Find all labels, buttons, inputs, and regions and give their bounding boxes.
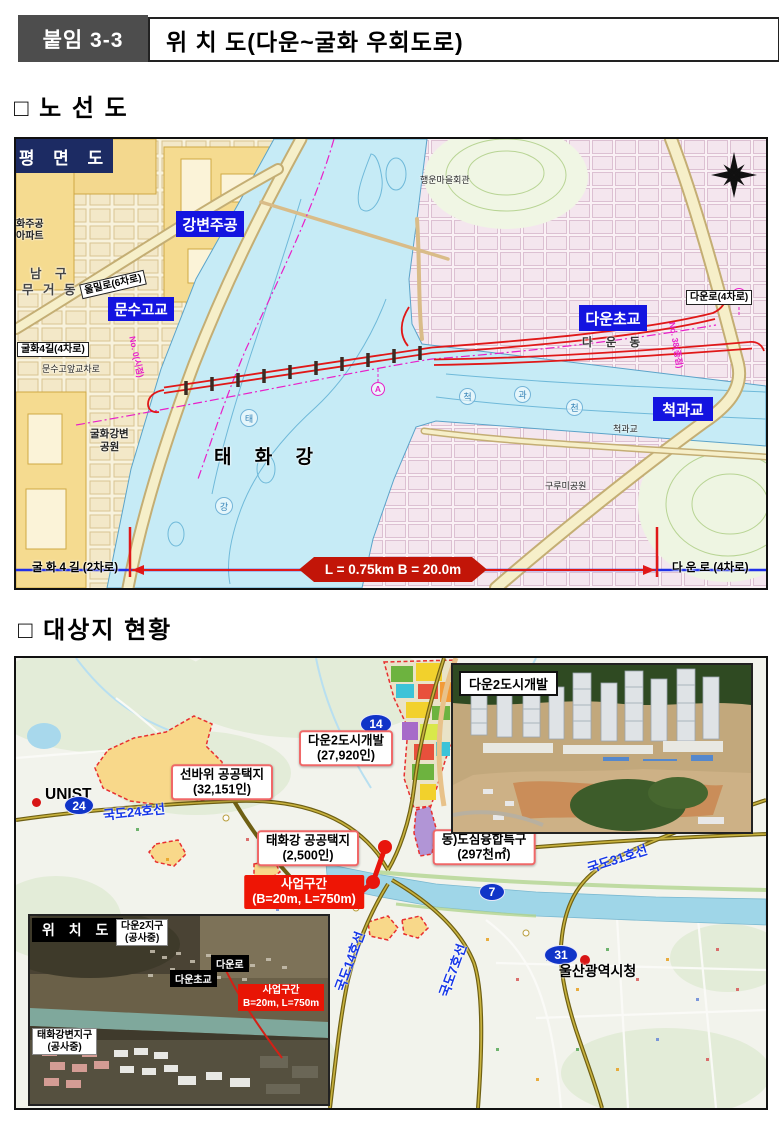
- river-name-char-2: 강: [215, 497, 233, 515]
- road-label-gulhwa4: 굴화4길(4차로): [17, 342, 89, 357]
- dimension-left-road: 굴 화 4 길 (2차로): [32, 559, 118, 575]
- photo-inset-title: 다운2도시개발: [459, 671, 558, 696]
- river-name-char-1: 태: [240, 409, 258, 427]
- zone-seonbawi: 선바위 공공택지 (32,151인): [171, 764, 273, 800]
- inset-project-name: 사업구간: [243, 985, 319, 998]
- location-inset-title: 위 치 도: [32, 918, 123, 942]
- project-section-spec: (B=20m, L=750m): [252, 892, 356, 907]
- project-section-callout: 사업구간 (B=20m, L=750m): [244, 875, 364, 909]
- inset-daun2-district-status: (공사중): [121, 933, 163, 945]
- dimension-right-road: 다 운 로 (4차로): [672, 559, 749, 575]
- zone-daun2-name: 다운2도시개발: [308, 733, 384, 748]
- document-page: 붙임 3-3 위 치 도(다운~굴화 우회도로) □ 노 선 도: [0, 0, 779, 1123]
- site-status-figure: UNIST 24 14 7 31 국도24호선 국도31호선 국도14호선 국도…: [14, 656, 768, 1110]
- section-route-map-heading: □ 노 선 도: [14, 88, 129, 123]
- route-map-background: A A: [16, 139, 766, 588]
- place-daun-dong: 다 운 동: [582, 334, 645, 350]
- daun2-photo-inset: 다운2도시개발: [451, 663, 753, 834]
- plan-view-label: 평 면 도: [16, 139, 113, 173]
- project-section-name: 사업구간: [252, 877, 356, 892]
- stream-name-char-1: 척: [459, 388, 476, 405]
- inset-daun2-district-name: 다운2지구: [121, 921, 163, 933]
- place-taehwa-river: 태 화 강: [214, 442, 322, 469]
- inset-taehwa-district-name: 태화강변지구: [37, 1030, 92, 1042]
- label-munsu-high-school: 문수고교: [108, 297, 174, 321]
- place-mugeo-dong: 무 거 동: [22, 279, 78, 298]
- city-hall-label: 울산광역시청: [559, 961, 636, 981]
- compass-icon: [710, 151, 758, 199]
- zone-seonbawi-value: (32,151인): [180, 782, 264, 797]
- zone-daun2-value: (27,920인): [308, 748, 384, 763]
- zone-dosim: 동)도심융합특구 (297천㎡): [433, 829, 536, 865]
- stream-name-char-2: 과: [514, 386, 531, 403]
- route-marker-7: 7: [479, 883, 505, 901]
- label-gangbyeon-jugong: 강변주공: [176, 211, 244, 237]
- label-cheokgwa-bridge: 척과교: [653, 397, 713, 421]
- route-marker-24: 24: [64, 796, 94, 815]
- route-map-figure: A A: [14, 137, 768, 590]
- section-site-status-heading: □ 대상지 현황: [18, 610, 172, 645]
- place-apartment-line2: 아파트: [16, 227, 44, 242]
- zone-dosim-name: 동)도심융합특구: [442, 832, 527, 847]
- inset-daun2-district: 다운2지구 (공사중): [116, 919, 168, 946]
- place-gulhwa-park-line2: 공원: [100, 439, 119, 454]
- stream-name-char-3: 천: [566, 399, 583, 416]
- inset-project-spec: B=20m, L=750m: [243, 998, 319, 1011]
- page-title: 위 치 도(다운~굴화 우회도로): [148, 17, 779, 62]
- zone-taehwagang-value: (2,500인): [266, 848, 350, 863]
- place-gurumi-park: 구루미공원: [545, 479, 586, 492]
- zone-dosim-value: (297천㎡): [442, 847, 527, 862]
- road-label-daunro: 다운로(4차로): [686, 290, 752, 305]
- inset-taehwa-district: 태화강변지구 (공사중): [32, 1028, 97, 1055]
- inset-daun-elementary-chip: 다운초교: [170, 970, 217, 987]
- dimension-badge-text: L = 0.75km B = 20.0m: [325, 562, 461, 577]
- location-photo-inset: 위 치 도 다운2지구 (공사중) 다운로 다운초교 사업구간 B=20m, L…: [28, 914, 330, 1106]
- inset-taehwa-district-status: (공사중): [37, 1042, 92, 1054]
- label-daun-elementary: 다운초교: [579, 305, 647, 331]
- dimension-badge: L = 0.75km B = 20.0m: [299, 557, 487, 582]
- zone-taehwagang-name: 태화강 공공택지: [266, 833, 350, 848]
- zone-seonbawi-name: 선바위 공공택지: [180, 767, 264, 782]
- inset-project-box: 사업구간 B=20m, L=750m: [238, 984, 324, 1011]
- place-munsu-crossing: 문수고앞교차로: [42, 362, 100, 375]
- zone-daun2: 다운2도시개발 (27,920인): [299, 730, 393, 766]
- zone-taehwagang: 태화강 공공택지 (2,500인): [257, 830, 359, 866]
- unist-dot: [32, 798, 41, 807]
- svg-text:A: A: [375, 384, 381, 394]
- place-cheokgwa-bridge-small: 척과교: [613, 422, 638, 435]
- attachment-tag: 붙임 3-3: [18, 15, 148, 62]
- place-haengun-hall: 행운마을회관: [420, 173, 470, 186]
